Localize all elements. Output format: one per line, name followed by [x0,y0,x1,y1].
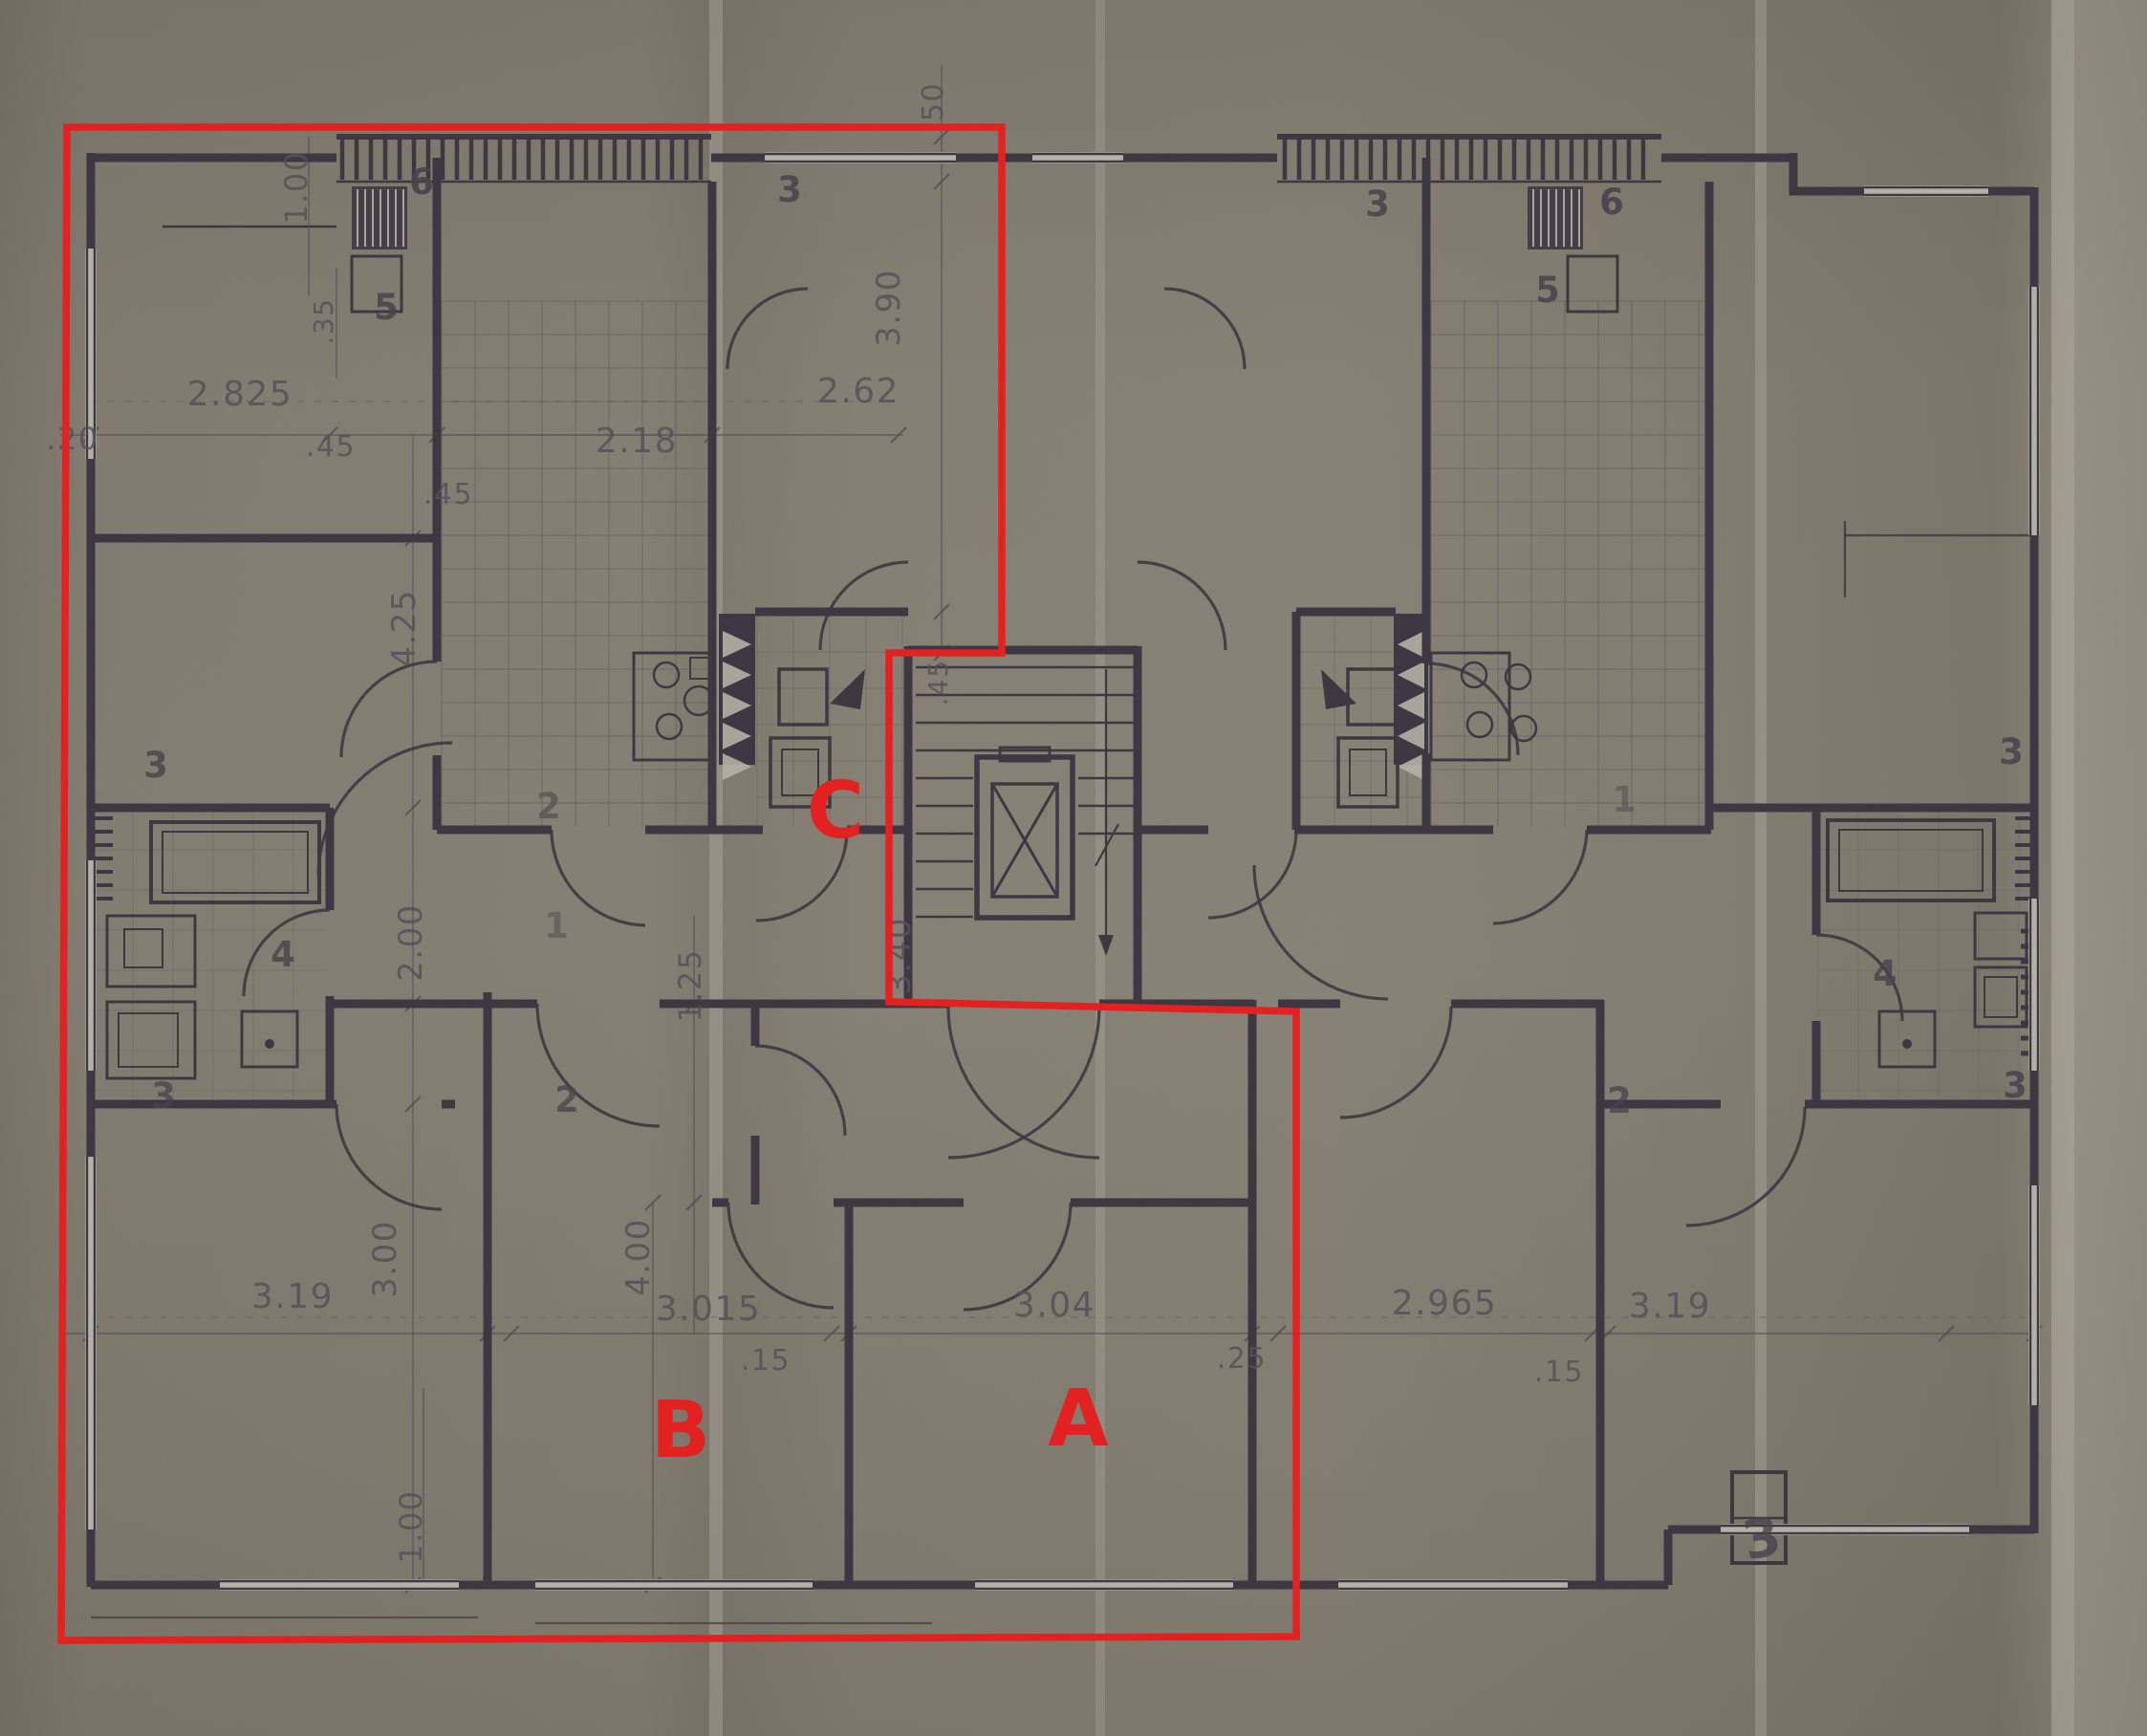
scanned-floorplan-photo: .202.825.452.182.62.453.193.015.153.04.2… [0,0,2147,1736]
floorplan-drawing: .202.825.452.182.62.453.193.015.153.04.2… [0,0,2147,1736]
film-grain-overlay [0,0,2147,1736]
